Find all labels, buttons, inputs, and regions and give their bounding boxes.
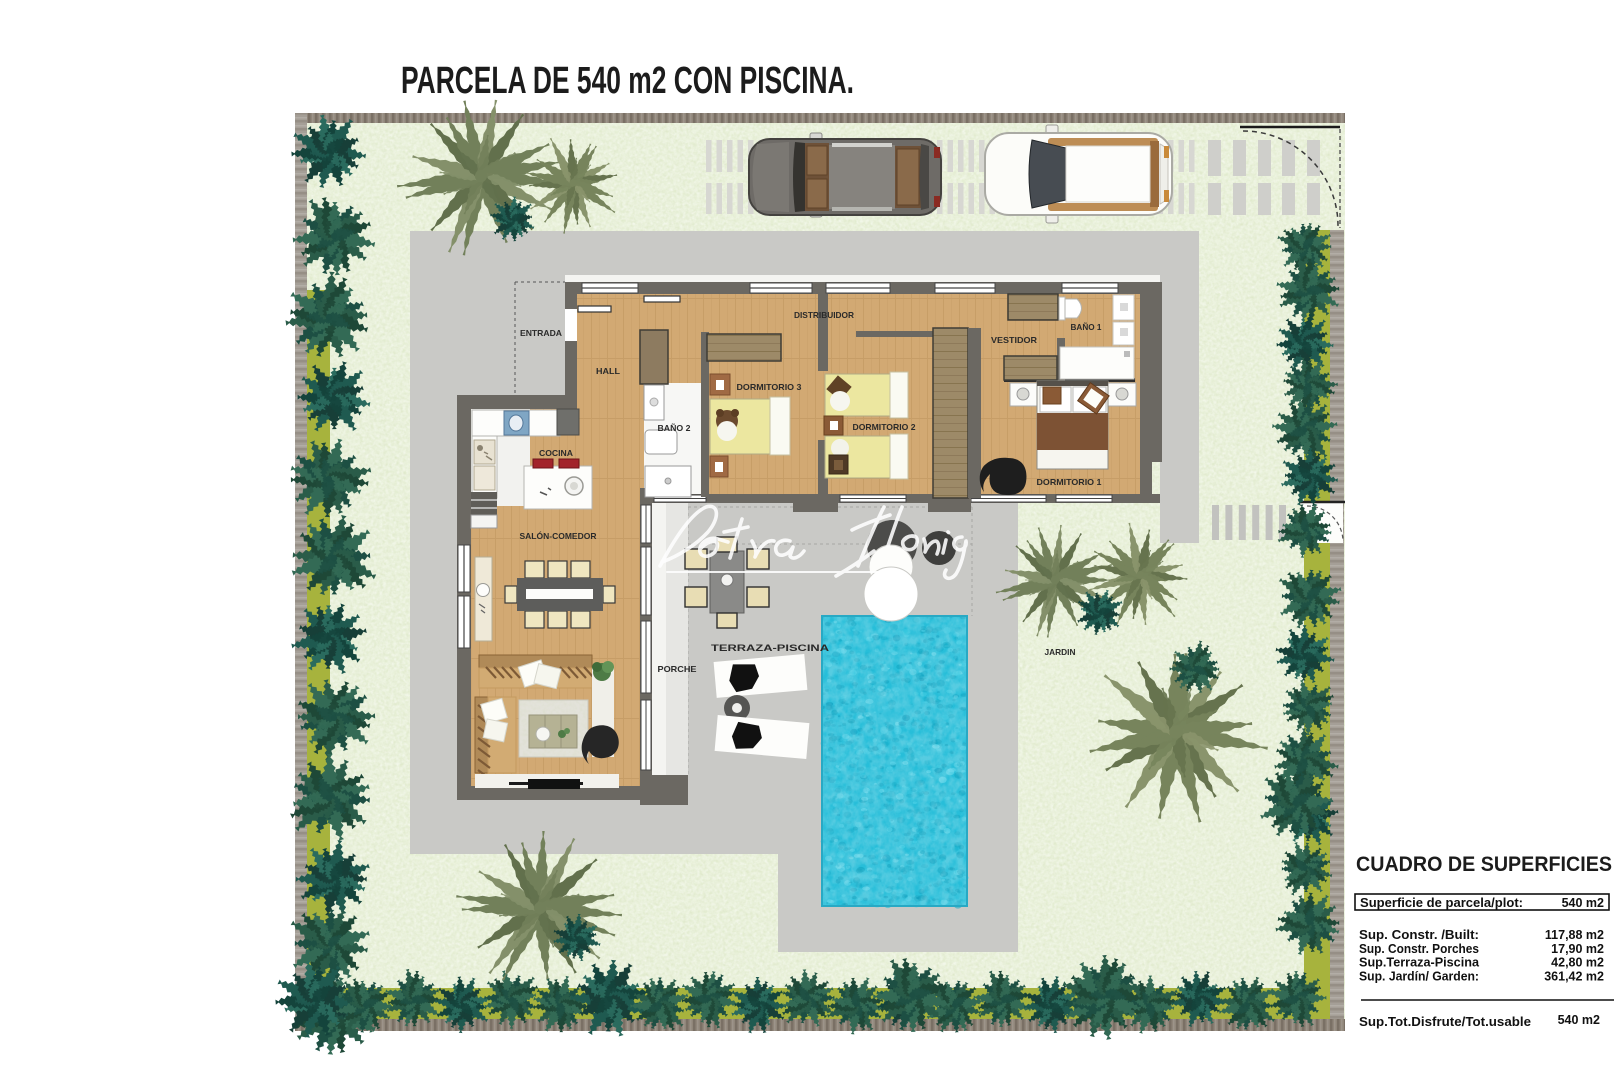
svg-text:PARCELA DE 540 m2 CON PISCINA.: PARCELA DE 540 m2 CON PISCINA.: [401, 60, 854, 102]
svg-text:HALL: HALL: [596, 366, 620, 376]
svg-text:DISTRIBUIDOR: DISTRIBUIDOR: [794, 310, 854, 320]
svg-text:CUADRO DE SUPERFICIES: CUADRO DE SUPERFICIES: [1356, 852, 1612, 876]
svg-text:ENTRADA: ENTRADA: [520, 328, 562, 338]
svg-text:Sup. Jardín/ Garden:: Sup. Jardín/ Garden:: [1359, 968, 1479, 983]
svg-text:Sup.Tot.Disfrute/Tot.usable: Sup.Tot.Disfrute/Tot.usable: [1359, 1014, 1531, 1029]
svg-text:SALÓN-COMEDOR: SALÓN-COMEDOR: [520, 530, 597, 541]
svg-text:Sup. Constr. /Built:: Sup. Constr. /Built:: [1359, 927, 1479, 942]
svg-text:17,90 m2: 17,90 m2: [1551, 942, 1604, 956]
svg-text:DORMITORIO 2: DORMITORIO 2: [853, 422, 916, 432]
svg-text:COCINA: COCINA: [539, 448, 573, 458]
svg-text:BAÑO 2: BAÑO 2: [658, 423, 691, 433]
svg-text:JARDIN: JARDIN: [1045, 647, 1076, 657]
svg-text:540 m2: 540 m2: [1562, 896, 1604, 910]
svg-text:VESTIDOR: VESTIDOR: [991, 335, 1037, 345]
svg-text:DORMITORIO 1: DORMITORIO 1: [1037, 477, 1102, 487]
svg-text:PORCHE: PORCHE: [658, 664, 697, 674]
svg-text:361,42 m2: 361,42 m2: [1544, 969, 1604, 983]
svg-text:BAÑO 1: BAÑO 1: [1071, 322, 1102, 332]
svg-text:42,80 m2: 42,80 m2: [1551, 956, 1604, 970]
svg-text:Superficie de parcela/plot:: Superficie de parcela/plot:: [1360, 895, 1523, 910]
svg-text:117,88 m2: 117,88 m2: [1545, 928, 1604, 942]
svg-text:540 m2: 540 m2: [1558, 1013, 1600, 1027]
svg-text:Sup. Constr. Porches: Sup. Constr. Porches: [1359, 941, 1479, 956]
svg-text:DORMITORIO 3: DORMITORIO 3: [737, 382, 802, 392]
svg-text:TERRAZA-PISCINA: TERRAZA-PISCINA: [711, 643, 830, 653]
svg-text:Sup.Terraza-Piscina: Sup.Terraza-Piscina: [1359, 955, 1480, 970]
